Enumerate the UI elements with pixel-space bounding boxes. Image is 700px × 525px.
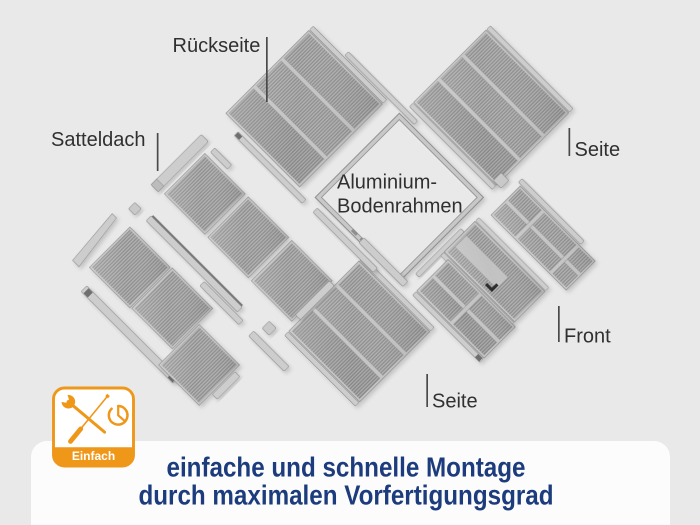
svg-text:Front: Front bbox=[564, 326, 611, 348]
svg-text:Aluminium-: Aluminium- bbox=[337, 172, 437, 194]
svg-text:Satteldach: Satteldach bbox=[51, 129, 146, 151]
svg-text:Seite: Seite bbox=[575, 139, 621, 161]
svg-text:durch maximalen Vorfertigungsg: durch maximalen Vorfertigungsgrad bbox=[138, 479, 553, 511]
svg-text:Rückseite: Rückseite bbox=[173, 35, 261, 57]
svg-text:Einfach: Einfach bbox=[72, 449, 115, 463]
svg-text:Bodenrahmen: Bodenrahmen bbox=[337, 196, 463, 218]
svg-text:Seite: Seite bbox=[432, 391, 478, 413]
